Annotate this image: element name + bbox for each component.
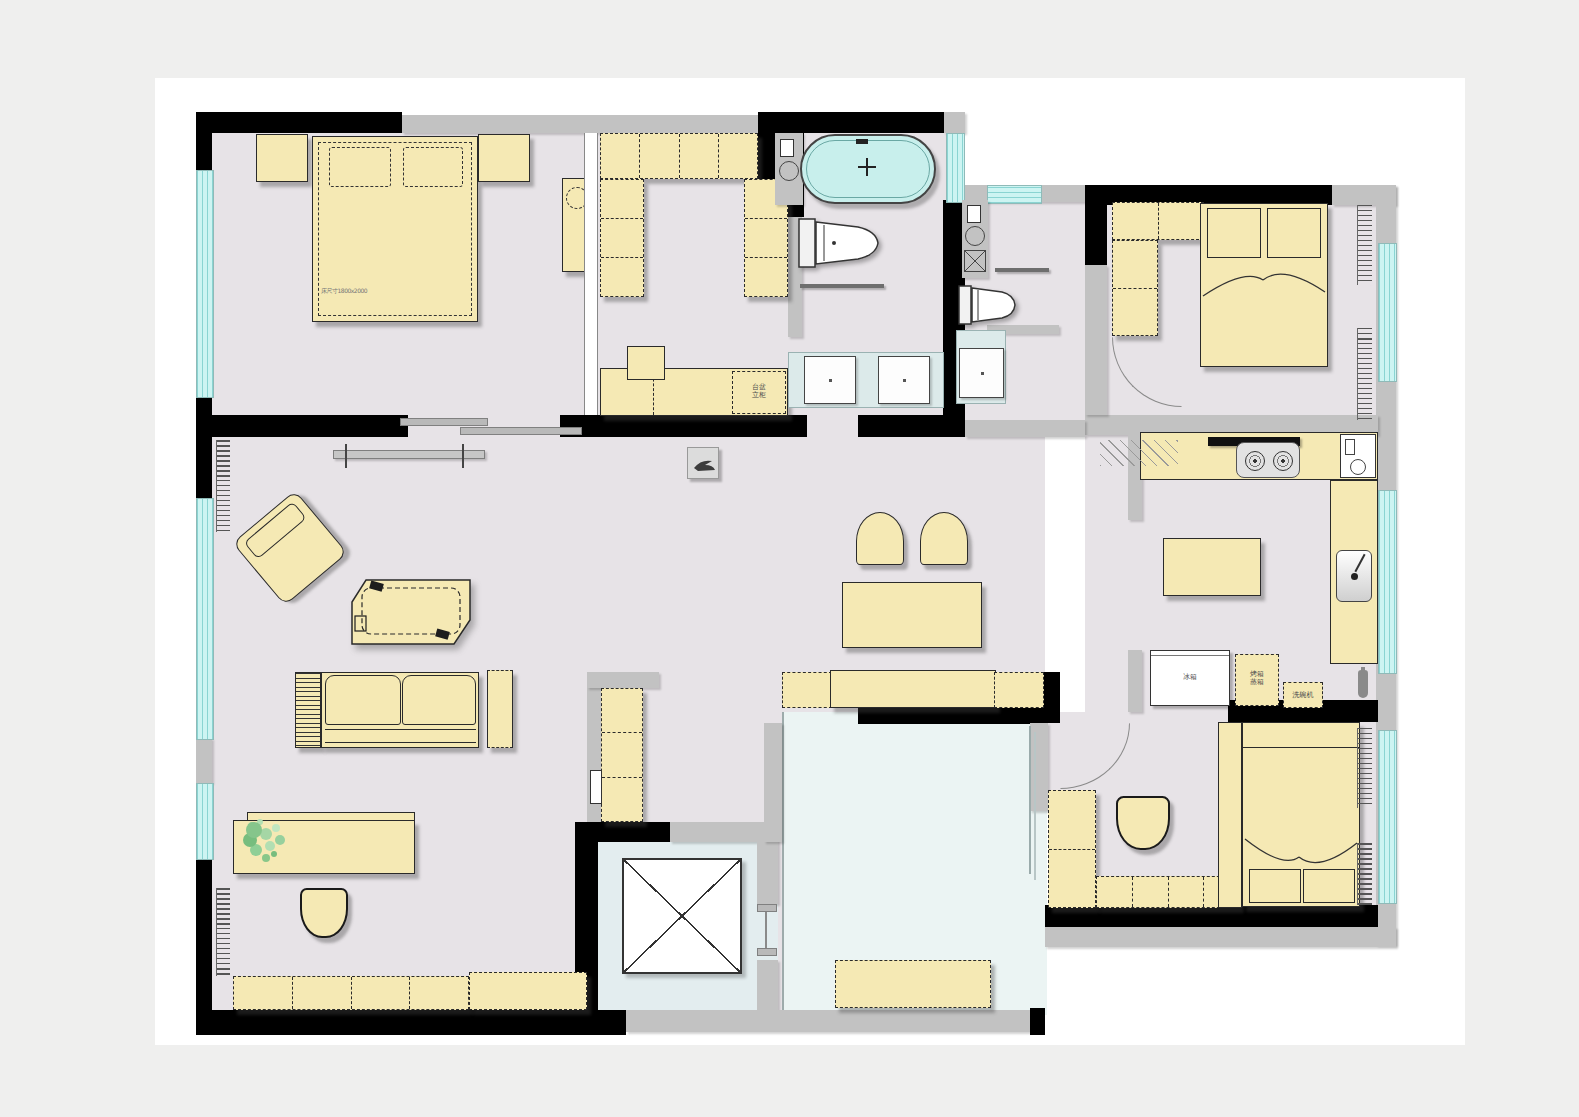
dining-chair-1 — [856, 512, 904, 565]
armchair-back — [244, 501, 307, 559]
bathtub — [800, 134, 936, 204]
wall-elevator-top-left — [575, 822, 670, 842]
shelf-bracket — [345, 444, 347, 468]
window-bath-right — [946, 133, 965, 203]
shelf-bracket — [462, 444, 464, 468]
oven-label-1: 烤箱 — [1236, 670, 1278, 678]
bath-wash-column — [775, 133, 803, 205]
wall-master-bottom-a — [196, 415, 408, 437]
elevator-door-line — [765, 912, 767, 948]
wall-top-master — [196, 112, 402, 133]
bench-middle — [830, 670, 996, 708]
blanket-folds — [1201, 252, 1327, 304]
wall-bottom-band — [626, 1010, 1030, 1032]
radiator-living-b — [216, 888, 230, 976]
water-heater-dial — [1350, 459, 1366, 475]
sink-drain — [1351, 573, 1358, 580]
elevator-door-panel — [757, 904, 777, 912]
plant — [246, 822, 262, 838]
dining-table — [842, 582, 982, 648]
fridge-top-line — [1151, 655, 1229, 656]
window-bedroom2-right — [1378, 243, 1397, 382]
wall-elevator-right-1 — [757, 842, 778, 904]
radiator-bedroom3-a — [1357, 728, 1372, 808]
sliding-door-track-2 — [460, 427, 582, 435]
dishwasher-label: 洗碗机 — [1284, 691, 1322, 699]
fridge-label: 冰箱 — [1151, 673, 1229, 681]
wall-left-3 — [196, 858, 212, 1035]
wall-elevator-top-right — [670, 822, 778, 842]
bedroom3-desk-return — [1218, 722, 1242, 908]
water-heater — [1340, 434, 1376, 478]
bench-end-right — [994, 672, 1044, 708]
faucet-cross-icon — [858, 158, 876, 176]
sofa-slat-bench — [295, 672, 321, 748]
oven-label-2: 蒸箱 — [1236, 678, 1278, 686]
terrace-bench — [835, 960, 991, 1008]
wall-top-corner — [944, 112, 965, 133]
toilet-master — [798, 216, 888, 270]
cabinet-wide-bottom — [469, 972, 587, 1010]
wall-terrace-top — [858, 707, 1030, 724]
wall-terrace-bottom-corner — [1030, 1008, 1045, 1035]
footboard-pillow — [1303, 869, 1355, 903]
wall-left-1 — [196, 112, 212, 170]
towel-bar-master — [800, 284, 884, 288]
closet-wardrobe-top — [600, 133, 758, 179]
headboard-pillow — [1207, 208, 1261, 258]
bed-head-line — [1243, 747, 1359, 748]
terrace-glass-line-2 — [1034, 732, 1036, 880]
pillow — [403, 147, 463, 187]
tall-cabinet-side-box — [590, 770, 602, 804]
closet-cabinet-label-2: 立柜 — [733, 391, 785, 399]
window-hallbath-top — [987, 185, 1042, 204]
window-bedroom3-right — [1378, 730, 1397, 904]
armchair-body — [232, 490, 348, 606]
terrace-glass-line-1 — [1029, 726, 1031, 874]
bench-end-left — [782, 672, 832, 708]
bedroom3-bed — [1242, 722, 1360, 907]
wash-column-basin — [779, 161, 799, 181]
bedroom2-bed — [1200, 203, 1328, 367]
window-master-left — [196, 170, 214, 398]
nightstand-left — [256, 134, 308, 182]
towel-bar-hall — [995, 268, 1049, 272]
sofa-cushion — [325, 675, 401, 725]
wall-bedroom3-bottom — [1045, 905, 1378, 927]
sofa — [321, 672, 479, 748]
dishwasher-cabinet: 洗碗机 — [1283, 682, 1323, 708]
closet-drawer-box — [627, 346, 665, 380]
wall-left-2 — [196, 396, 212, 498]
bed-size-annotation: 床尺寸1800x2000 — [321, 287, 367, 296]
laundry-basin — [965, 226, 985, 246]
bathtub-drain — [856, 139, 868, 144]
master-bed: 床尺寸1800x2000 — [312, 136, 478, 322]
laundry-column — [962, 200, 988, 278]
oven-cabinet: 烤箱 蒸箱 — [1235, 654, 1279, 706]
closet-divider-wall — [584, 133, 598, 415]
bedroom2-wardrobe-top — [1112, 202, 1204, 240]
dining-chair-2 — [920, 512, 968, 565]
wall-left-sill — [196, 738, 212, 783]
kitchen-sink — [1336, 550, 1372, 602]
sliding-door-track-1 — [400, 418, 488, 426]
sofa-side-table — [487, 670, 513, 748]
footboard-pillow — [1249, 869, 1301, 903]
utensil-icon — [1358, 670, 1368, 698]
window-living-left-2 — [196, 783, 214, 860]
bedroom2-wardrobe-column — [1112, 240, 1158, 336]
closet-cabinet-label-1: 台盆 — [733, 383, 785, 391]
vanity-sink-1 — [804, 356, 856, 404]
wall-cabinet-nook-top — [587, 672, 659, 688]
wall-hallbath-bottom — [965, 420, 1085, 437]
radiator-bedroom2-a — [1357, 205, 1372, 285]
wall-kitchen-stub-bottom — [1128, 650, 1142, 712]
vanity-sink-hall — [959, 348, 1004, 398]
bird-icon — [688, 448, 718, 478]
wall-elevator-right-2 — [757, 960, 778, 1015]
window-living-left-1 — [196, 498, 214, 740]
nightstand-right — [478, 134, 530, 182]
cabinet-row-bottom — [233, 976, 469, 1010]
sofa-front-band — [325, 729, 476, 743]
radiator-bedroom3-b — [1357, 843, 1372, 905]
sink-faucet — [1354, 554, 1365, 573]
decor-box — [687, 447, 719, 479]
chaise-lounge — [350, 578, 472, 646]
burner-icon — [1245, 451, 1265, 471]
wall-terrace-left — [764, 723, 782, 842]
elevator-door-panel — [757, 948, 777, 956]
entry-threshold-hatch — [1100, 440, 1178, 466]
elevator-shaft — [622, 858, 742, 974]
kitchen-island — [1163, 538, 1261, 596]
vanity-sink-2 — [878, 356, 930, 404]
water-heater-switch — [1345, 439, 1355, 455]
bench-label-cell: 台盆 立柜 — [732, 371, 786, 414]
sofa-cushion — [402, 675, 476, 725]
wall-bedroom3-door-jamb — [1030, 723, 1048, 811]
refrigerator: 冰箱 — [1150, 650, 1230, 706]
wall-hallbath-right-low — [1085, 265, 1107, 415]
gas-stove — [1236, 442, 1300, 478]
laundry-box — [967, 205, 981, 223]
bedroom3-cabinet-left — [1048, 790, 1096, 908]
wall-master-bottom-b — [560, 415, 807, 437]
wall-top-bath — [804, 112, 944, 133]
closet-wardrobe-left — [600, 179, 644, 297]
window-kitchen-right — [1378, 490, 1397, 674]
pillow — [329, 147, 391, 187]
wall-master-bottom-c — [858, 415, 965, 437]
radiator-bedroom2-b — [1357, 328, 1372, 420]
headboard-pillow — [1267, 208, 1321, 258]
floor-plan-page: 床尺寸1800x2000 台盆 立柜 — [0, 0, 1579, 1117]
wall-bottom-left — [196, 1010, 626, 1035]
armchair — [240, 498, 340, 598]
tall-cabinet — [601, 688, 643, 822]
wall-bedroom3-bottom-band — [1045, 927, 1396, 947]
wall-top-closet — [402, 115, 758, 133]
toilet-hall — [958, 283, 1022, 327]
washer-x-box — [964, 250, 986, 272]
wash-column-box — [780, 139, 794, 157]
burner-icon — [1273, 451, 1293, 471]
radiator-living-a — [216, 440, 230, 532]
